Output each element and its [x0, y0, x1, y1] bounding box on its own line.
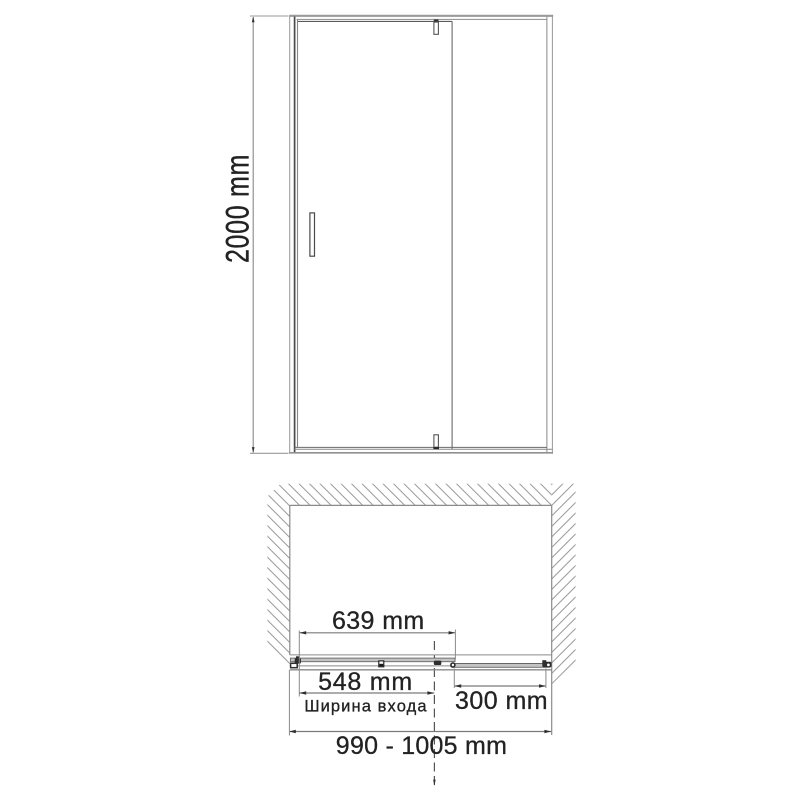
svg-text:548 mm: 548 mm — [318, 668, 413, 696]
svg-text:2000 mm: 2000 mm — [220, 154, 256, 263]
svg-text:639 mm: 639 mm — [332, 607, 425, 635]
svg-text:300 mm: 300 mm — [455, 687, 548, 715]
svg-text:990 - 1005 mm: 990 - 1005 mm — [336, 732, 507, 760]
svg-text:Ширина входа: Ширина входа — [304, 698, 427, 716]
